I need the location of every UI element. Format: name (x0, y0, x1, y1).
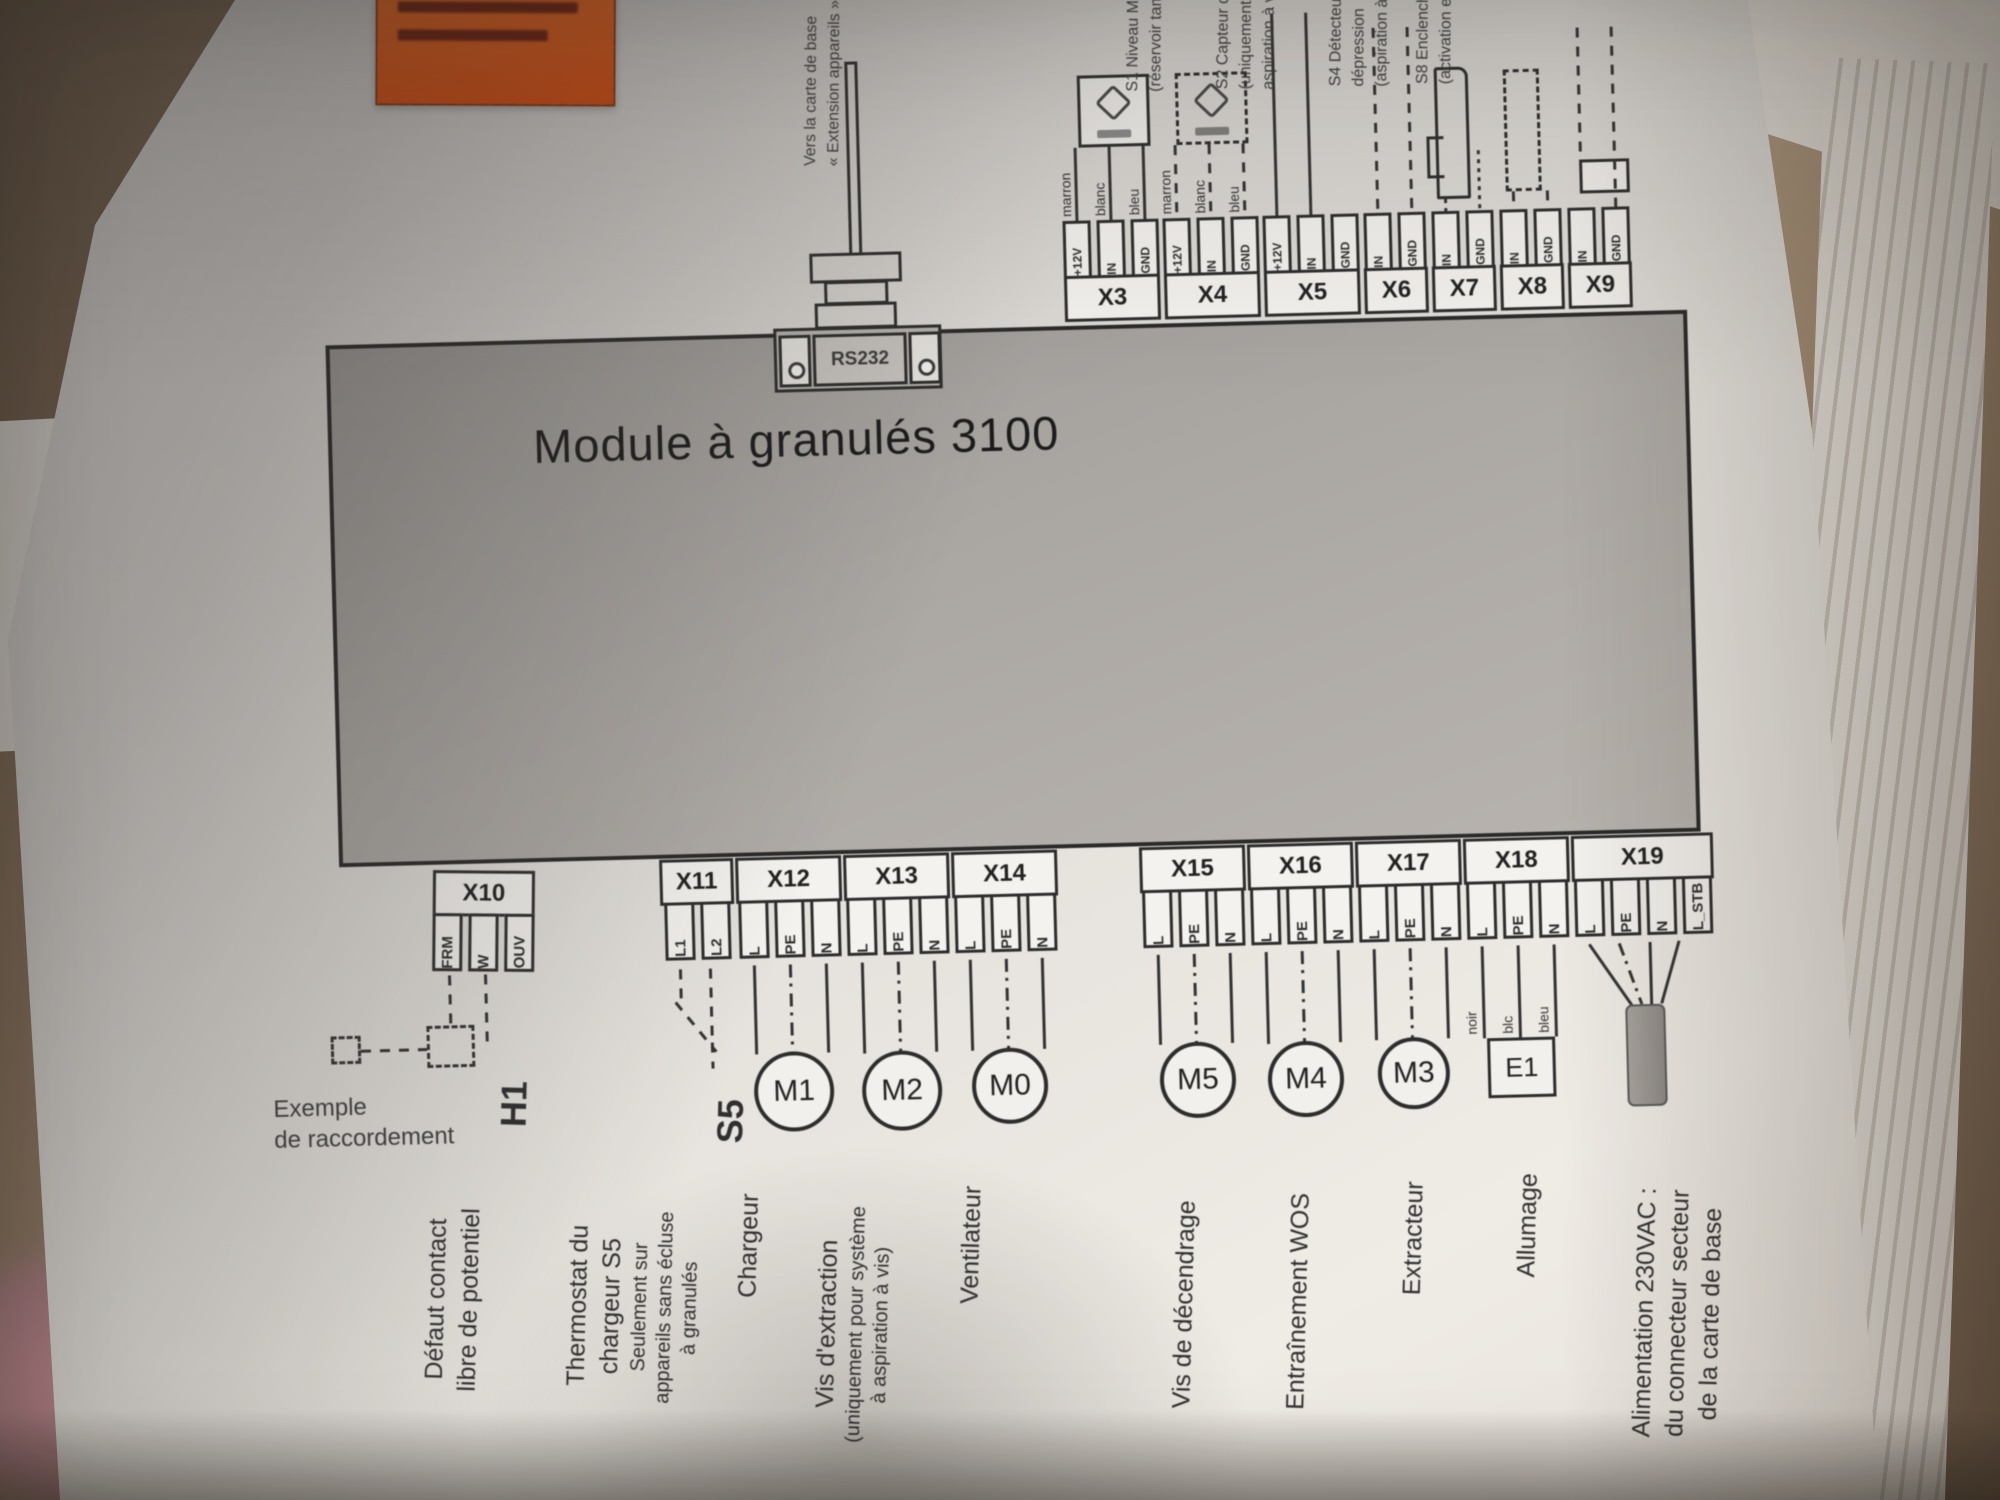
pin-row: L PE N (1464, 879, 1571, 940)
wire (1445, 947, 1450, 1038)
wire (1576, 28, 1582, 160)
motor-m1: M1 (753, 1050, 835, 1132)
pin-row: +12V IN GND (1162, 216, 1259, 276)
wire (1265, 952, 1270, 1044)
pin-x3-gnd: GND (1130, 219, 1160, 278)
sensor-s8-shape (1503, 69, 1542, 192)
connector-header: X19 (1571, 832, 1714, 882)
wire-color-label: bleu (1125, 151, 1143, 215)
pin-x5-12v: +12V (1262, 215, 1292, 274)
connector-x10: X10 FRM W OUV (432, 870, 535, 972)
motor-m4: M4 (1267, 1040, 1345, 1118)
plug-body (809, 251, 902, 283)
sensor-s4-shape (1434, 66, 1471, 199)
connector-x17: X17 L PE N (1355, 839, 1464, 943)
pin-x8-in: IN (1499, 209, 1529, 268)
wire (789, 964, 794, 1053)
pin-x10-w: W (468, 913, 499, 971)
fan-m0: M0 (971, 1047, 1049, 1125)
pin-x14-l: L (954, 894, 986, 953)
connector-x4: +12V IN GND X4 (1162, 216, 1261, 319)
pin-x4-12v: +12V (1162, 218, 1192, 277)
pin-x14-n: N (1026, 893, 1058, 952)
pin-x12-pe: PE (774, 899, 806, 958)
pin-row: L PE N (1248, 885, 1355, 946)
label-s5: Thermostat du chargeur S5 Seulement sur … (556, 1095, 754, 1500)
illegible-text-smudge (398, 29, 548, 41)
motor-m3: M3 (1377, 1036, 1451, 1110)
illegible-text-smudge (398, 1, 578, 13)
wire (1301, 951, 1306, 1043)
pin-x17-pe: PE (1394, 883, 1426, 942)
connector-x5: +12V IN GND X5 (1262, 213, 1361, 316)
wire (1208, 144, 1213, 217)
pin-row: L PE N (844, 895, 951, 956)
warning-sticker (375, 0, 616, 107)
pin-row: L PE N (952, 892, 1059, 953)
pin-x15-n: N (1214, 888, 1246, 947)
wire-color-label: blc (1498, 968, 1516, 1034)
connector-x8: IN GND X8 (1498, 208, 1565, 311)
wire (1157, 955, 1162, 1045)
wire (361, 1048, 427, 1053)
pin-row: L PE N L_STB (1572, 875, 1715, 937)
illegible-text-smudge (1097, 129, 1131, 138)
pin-x9-gnd: GND (1601, 206, 1631, 265)
connector-header: X7 (1432, 265, 1497, 313)
ignition-e1: E1 (1487, 1037, 1557, 1099)
pin-x6-gnd: GND (1397, 212, 1427, 271)
wire (448, 975, 452, 1025)
pin-row: IN GND (1498, 208, 1563, 268)
pin-x10-ouv: OUV (504, 914, 535, 972)
wire (1005, 959, 1010, 1050)
connector-header: X16 (1247, 842, 1354, 891)
pin-x18-n: N (1538, 879, 1570, 938)
pin-x18-l: L (1466, 881, 1498, 940)
connector-header: X4 (1164, 271, 1261, 319)
connector-header: X5 (1264, 268, 1361, 316)
wire (753, 965, 758, 1054)
pin-row: IN GND (1566, 206, 1631, 266)
connector-header: X8 (1500, 263, 1565, 311)
connector-x12: X12 L PE N (735, 855, 844, 959)
wire (1174, 145, 1179, 218)
rs232-socket: RS232 (773, 324, 943, 392)
connector-x11: X11 L1 L2 (659, 858, 736, 961)
pin-x15-l: L (1142, 889, 1174, 948)
pin-x14-pe: PE (990, 893, 1022, 952)
label-entrainement-wos: Entraînement WOS (1277, 1126, 1319, 1477)
connector-header: X14 (951, 849, 1058, 898)
wire (1618, 943, 1644, 1005)
wire-color-label: blanc (1191, 149, 1209, 213)
wire (1481, 946, 1486, 1038)
pin-x19-l: L (1574, 878, 1606, 937)
connector-header: X17 (1355, 839, 1462, 888)
pin-row: IN GND (1430, 210, 1495, 270)
pin-x4-in: IN (1196, 217, 1226, 276)
rs232-label: RS232 (812, 332, 907, 386)
wire (1409, 948, 1414, 1039)
wire (1660, 940, 1680, 1003)
wire (1193, 954, 1198, 1044)
pin-x16-n: N (1322, 885, 1354, 944)
wire (1074, 148, 1079, 221)
connector-header: X11 (659, 858, 734, 906)
wire (933, 961, 938, 1052)
pin-row: L1 L2 (660, 901, 735, 961)
pin-x16-l: L (1250, 887, 1282, 946)
pin-x13-l: L (846, 897, 878, 956)
serial-cable (844, 61, 862, 257)
connector-header: X3 (1064, 274, 1161, 322)
wire-color-label: noir (1462, 968, 1480, 1034)
connector-header: X18 (1463, 836, 1570, 885)
pin-x19-lstb: L_STB (1682, 875, 1714, 934)
wire-color-label: bleu (1225, 148, 1243, 212)
pin-x12-n: N (810, 898, 842, 957)
pin-x17-n: N (1430, 882, 1462, 941)
label-ventilateur: Ventilateur (952, 1134, 991, 1355)
pin-x5-in: IN (1296, 214, 1326, 273)
label-alimentation: Alimentation 230VAC : du connecteur sect… (1623, 1117, 1732, 1500)
sensor-label-s4: S4 Détecteur de dépression (aspiration à… (1324, 0, 1395, 87)
sensor-label-s8: S8 Enclenchement (activation externe) (1411, 0, 1459, 84)
wire (1477, 150, 1482, 212)
wire (1553, 944, 1558, 1036)
connector-x6: IN GND X6 (1362, 212, 1429, 315)
label-chargeur: Chargeur (730, 1140, 768, 1351)
pin-row: L PE N (1140, 888, 1247, 949)
sensor-label-s2: S2 Capteur de niveau (uniquement avec as… (1211, 0, 1282, 90)
wiring-diagram: Vers la carte de base « Extension appare… (0, 0, 2000, 1500)
mains-cable-stub (1625, 1004, 1668, 1107)
connector-header: X10 (433, 870, 535, 917)
connector-header: X9 (1568, 261, 1633, 309)
wire (1041, 958, 1046, 1049)
wire (897, 962, 902, 1053)
wire (1242, 143, 1247, 216)
wire (709, 969, 714, 1043)
label-vis-decendrage: Vis de décendrage (1163, 1129, 1205, 1480)
pin-x11-l1: L1 (664, 902, 696, 961)
socket-wing (778, 335, 811, 388)
wire (1649, 942, 1654, 1004)
connector-header: X13 (843, 852, 950, 901)
connector-x7: IN GND X7 (1430, 210, 1497, 313)
screw-icon (788, 362, 805, 379)
example-contact-symbol (331, 1036, 362, 1065)
connector-header: X6 (1364, 267, 1429, 315)
connector-x3: +12V IN GND X3 (1062, 219, 1161, 322)
wire (711, 1043, 715, 1069)
motor-m2: M2 (861, 1050, 943, 1132)
pin-x10-frm: FRM (432, 913, 463, 971)
connector-x14: X14 L PE N (951, 849, 1060, 953)
connector-x9: IN GND X9 (1566, 206, 1633, 309)
wire (1142, 146, 1147, 219)
pin-row: L PE N (1356, 882, 1463, 943)
connector-x18: X18 L PE N (1463, 836, 1572, 940)
connector-x13: X13 L PE N (843, 852, 952, 956)
pin-x8-gnd: GND (1533, 208, 1563, 267)
label-vis-extraction: Vis d'extraction (uniquement pour systèm… (806, 1138, 899, 1500)
module-box (325, 310, 1700, 867)
label-h1: Défaut contact libre de potentiel H1 (414, 1079, 537, 1500)
pin-x6-in: IN (1363, 213, 1393, 272)
pin-x9-in: IN (1567, 207, 1597, 266)
pin-x3-in: IN (1096, 219, 1126, 278)
connector-x16: X16 L PE N (1247, 842, 1356, 946)
pin-x17-l: L (1358, 884, 1390, 943)
wire (679, 969, 683, 1001)
sensor-label-s1: S1 Niveau MAX (réservoir tampon) (1121, 0, 1169, 92)
wire (1337, 950, 1342, 1042)
connector-tab (1579, 158, 1630, 193)
pin-x18-pe: PE (1502, 880, 1534, 939)
wire (484, 974, 489, 1044)
connector-header: X12 (735, 855, 842, 904)
screw-icon (918, 359, 935, 376)
pin-x4-gnd: GND (1230, 216, 1260, 275)
pin-x11-l2: L2 (700, 901, 732, 960)
pin-x3-12v: +12V (1062, 220, 1092, 279)
wire (969, 960, 974, 1051)
label-allumage: Allumage (1509, 1120, 1547, 1331)
illegible-text-smudge (1195, 127, 1229, 136)
cable-destination-label: Vers la carte de base « Extension appare… (799, 0, 847, 166)
pin-x15-pe: PE (1178, 889, 1210, 948)
pin-x16-pe: PE (1286, 886, 1318, 945)
pin-x13-pe: PE (882, 896, 914, 955)
wire-color-label: marron (1057, 153, 1075, 217)
wire-color-label: blanc (1091, 152, 1109, 216)
pin-row: IN GND (1362, 212, 1427, 272)
pin-x12-l: L (738, 900, 770, 959)
wire (1229, 953, 1234, 1043)
label-extracteur: Extracteur (1394, 1123, 1433, 1354)
pin-row: +12V IN GND (1262, 213, 1359, 273)
wire (861, 963, 866, 1054)
wire (1373, 949, 1378, 1040)
socket-wing (908, 331, 941, 384)
pin-row: L PE N (736, 898, 843, 959)
pin-x19-pe: PE (1610, 877, 1642, 936)
photo-of-wiring-diagram: Vers la carte de base « Extension appare… (0, 0, 2000, 1500)
pin-x7-in: IN (1431, 211, 1461, 270)
wire (1517, 945, 1522, 1037)
pin-row: FRM W OUV (432, 913, 535, 972)
wire (1304, 13, 1312, 215)
pin-row: +12V IN GND (1062, 219, 1159, 279)
wire (825, 964, 830, 1053)
pin-x19-n: N (1646, 876, 1678, 935)
wire-color-label: marron (1157, 150, 1175, 214)
pin-x7-gnd: GND (1465, 210, 1495, 269)
wire (1108, 147, 1113, 220)
connector-x19: X19 L PE N L_STB (1571, 832, 1716, 937)
pin-x13-n: N (918, 895, 950, 954)
motor-m5: M5 (1159, 1041, 1237, 1119)
wire (1588, 944, 1633, 1006)
pin-x5-gnd: GND (1330, 213, 1360, 272)
example-lamp-symbol (426, 1025, 475, 1068)
wire-color-label: bleu (1534, 967, 1552, 1033)
connector-x15: X15 L PE N (1139, 845, 1248, 949)
connector-header: X15 (1139, 845, 1246, 894)
